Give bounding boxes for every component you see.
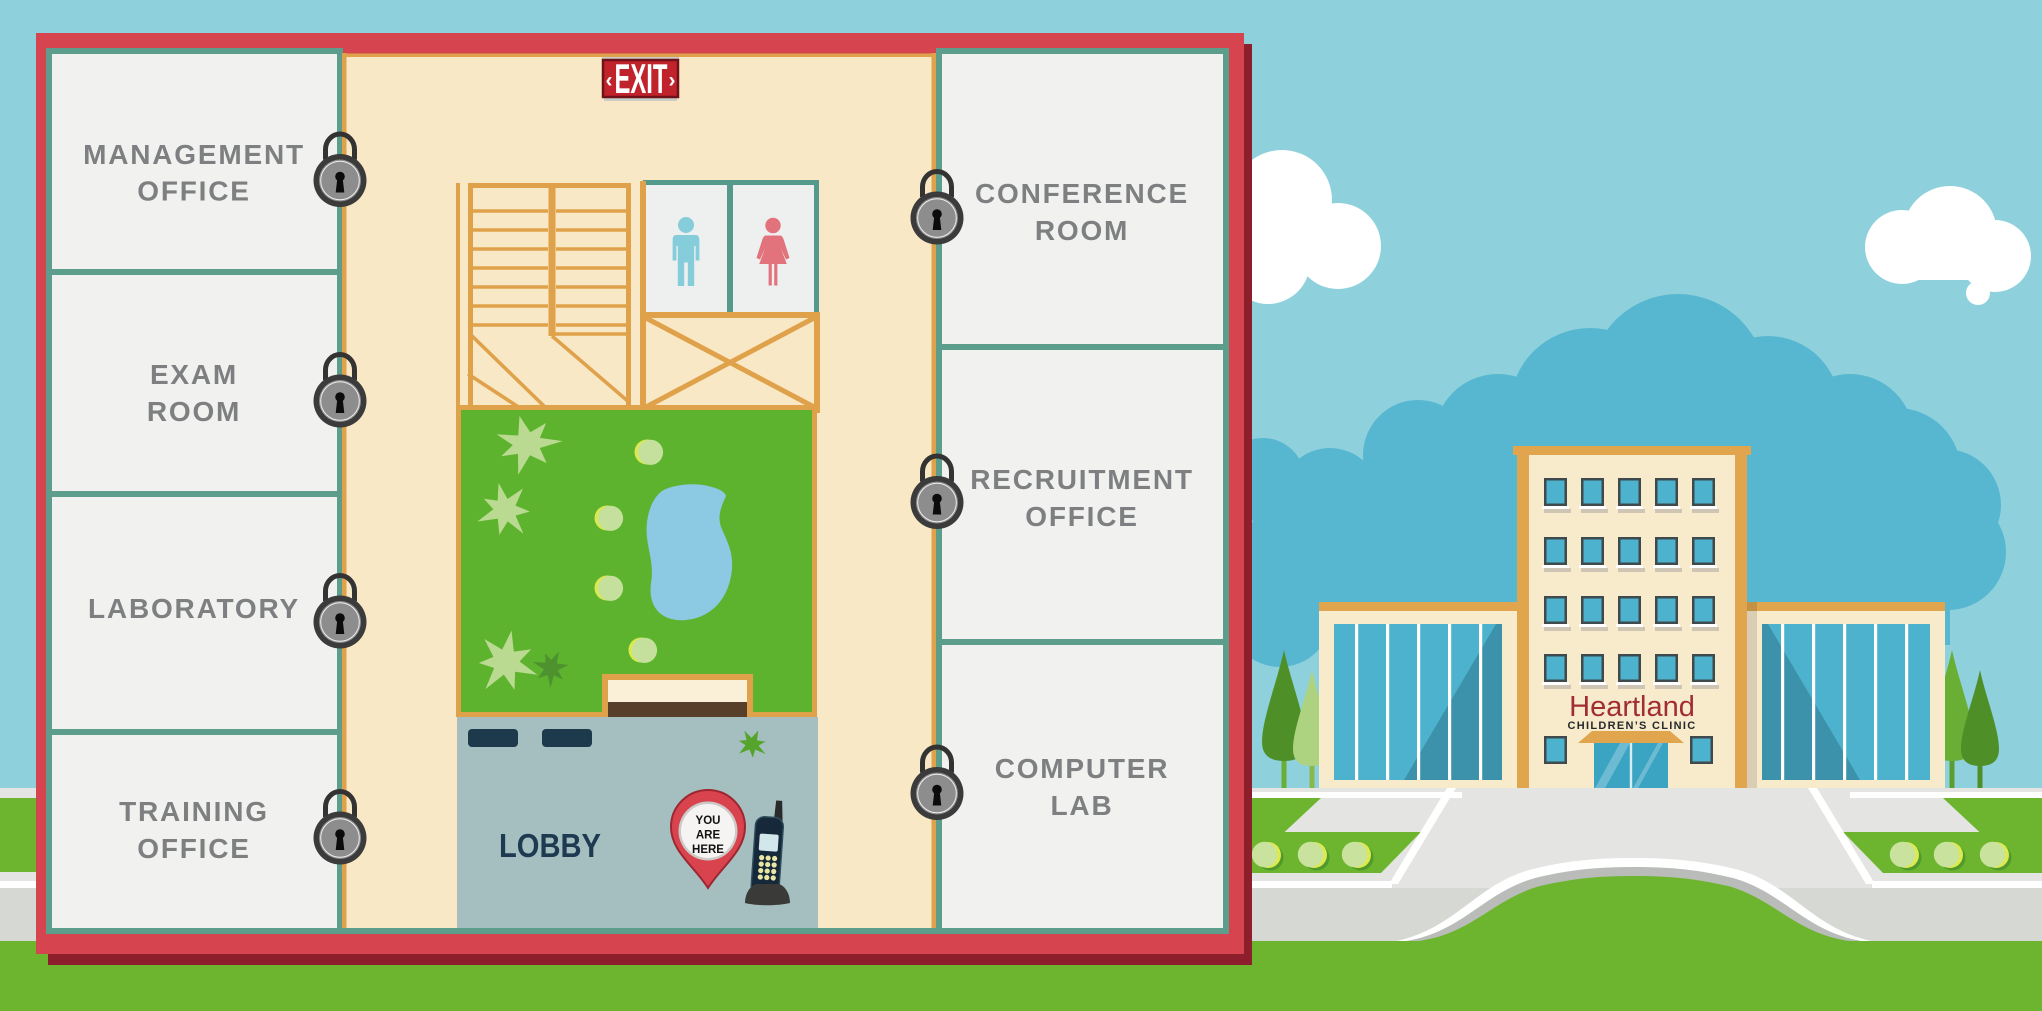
svg-text:CONFERENCE: CONFERENCE <box>975 178 1189 209</box>
svg-text:CHILDREN’S CLINIC: CHILDREN’S CLINIC <box>1567 720 1696 732</box>
svg-text:ROOM: ROOM <box>147 396 241 427</box>
svg-text:›: › <box>669 69 676 92</box>
svg-text:EXAM: EXAM <box>150 359 238 390</box>
svg-text:LAB: LAB <box>1051 790 1114 821</box>
svg-text:ROOM: ROOM <box>1035 215 1129 246</box>
svg-text:OFFICE: OFFICE <box>137 833 250 864</box>
svg-text:LOBBY: LOBBY <box>499 827 601 864</box>
svg-text:Heartland: Heartland <box>1569 691 1695 723</box>
svg-text:RECRUITMENT: RECRUITMENT <box>970 464 1194 495</box>
svg-text:LABORATORY: LABORATORY <box>88 593 300 624</box>
svg-text:EXIT: EXIT <box>615 55 668 102</box>
svg-text:‹: ‹ <box>606 69 613 92</box>
svg-text:OFFICE: OFFICE <box>1025 501 1138 532</box>
svg-text:MANAGEMENT: MANAGEMENT <box>83 139 305 170</box>
svg-text:TRAINING: TRAINING <box>119 796 269 827</box>
svg-text:OFFICE: OFFICE <box>137 176 250 207</box>
svg-text:COMPUTER: COMPUTER <box>995 753 1170 784</box>
svg-text:ARE: ARE <box>696 830 721 842</box>
svg-text:YOU: YOU <box>696 815 721 827</box>
svg-text:HERE: HERE <box>692 844 724 856</box>
